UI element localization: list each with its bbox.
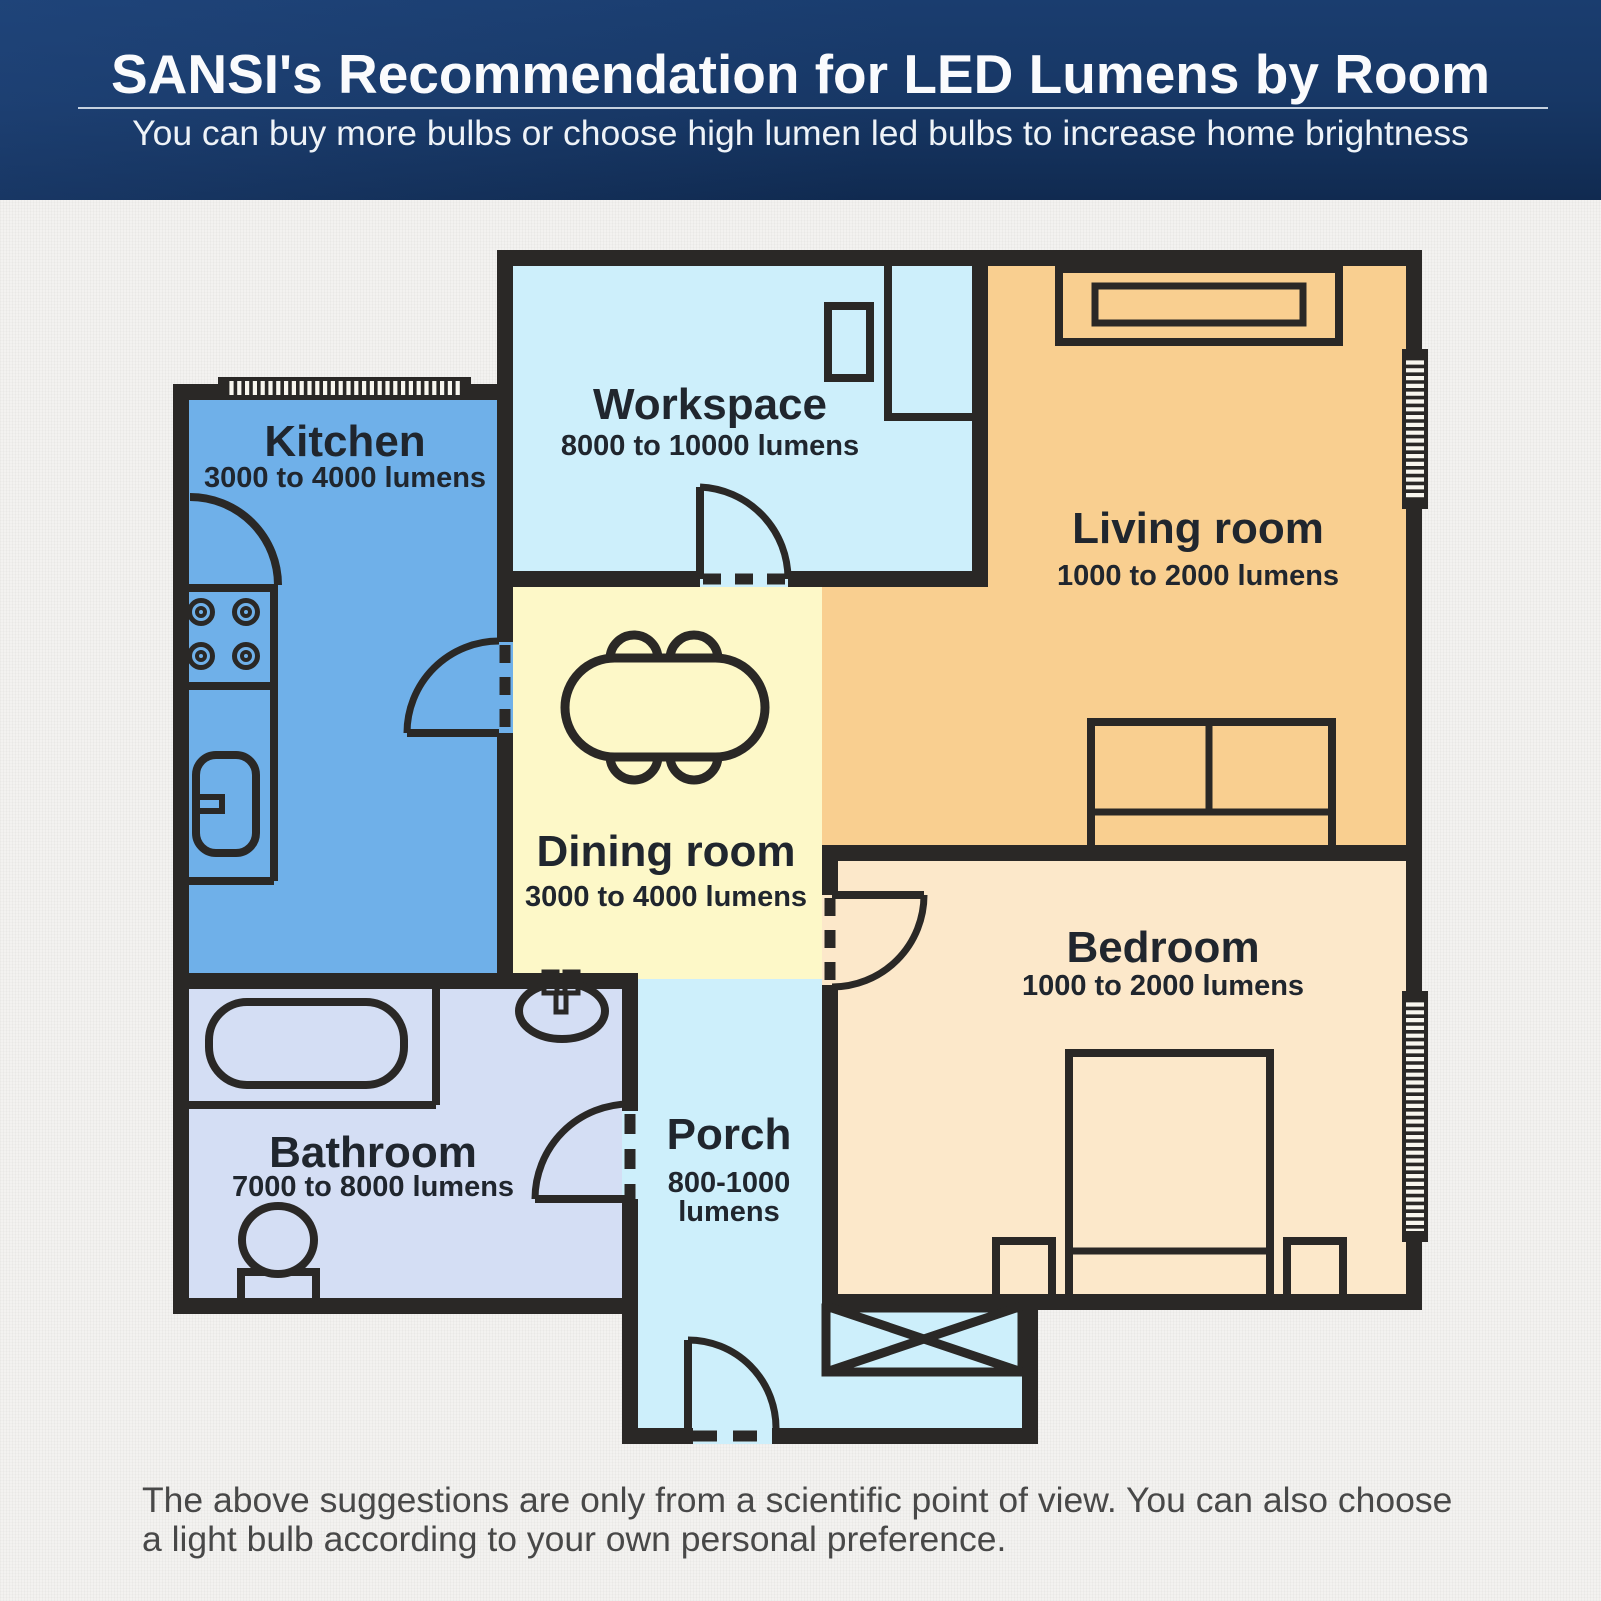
svg-text:Porch: Porch bbox=[667, 1110, 792, 1159]
svg-text:800-1000: 800-1000 bbox=[668, 1167, 791, 1199]
svg-text:1000 to 2000 lumens: 1000 to 2000 lumens bbox=[1057, 560, 1339, 592]
svg-text:Dining room: Dining room bbox=[536, 827, 795, 876]
svg-text:Bathroom: Bathroom bbox=[269, 1128, 477, 1177]
svg-text:7000 to 8000 lumens: 7000 to 8000 lumens bbox=[232, 1171, 514, 1203]
svg-text:Workspace: Workspace bbox=[593, 380, 827, 429]
svg-text:Living room: Living room bbox=[1072, 504, 1324, 553]
svg-text:8000 to 10000 lumens: 8000 to 10000 lumens bbox=[561, 430, 859, 462]
svg-text:3000 to 4000 lumens: 3000 to 4000 lumens bbox=[525, 881, 807, 913]
svg-text:1000 to 2000 lumens: 1000 to 2000 lumens bbox=[1022, 970, 1304, 1002]
svg-text:Bedroom: Bedroom bbox=[1066, 923, 1259, 972]
svg-text:Kitchen: Kitchen bbox=[264, 417, 425, 466]
svg-text:lumens: lumens bbox=[678, 1196, 780, 1228]
svg-text:3000 to 4000 lumens: 3000 to 4000 lumens bbox=[204, 462, 486, 494]
